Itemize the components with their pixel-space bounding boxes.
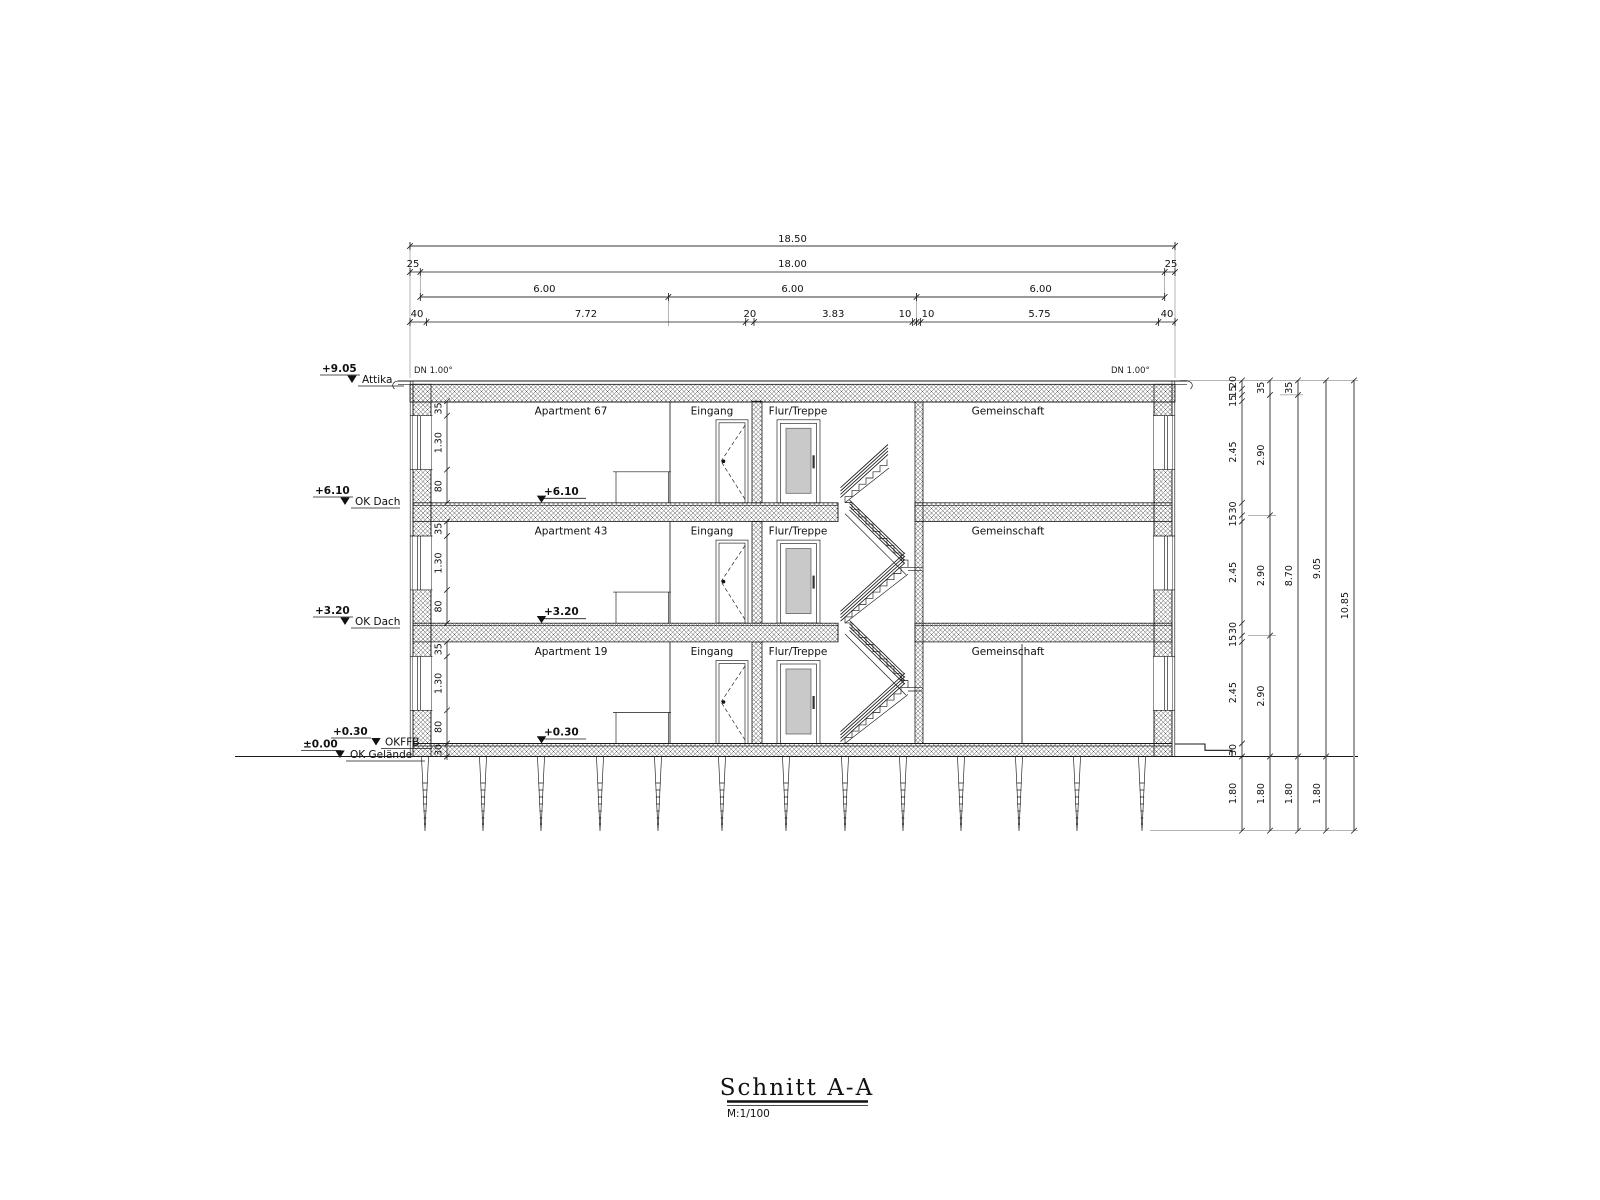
level-marker-ok-dach-upper: +6.10 OK Dach: [313, 485, 400, 508]
floor-level-marker-middle: +3.20: [537, 606, 586, 623]
stair-top: [841, 445, 890, 503]
apartment-label-middle: Apartment 43: [535, 526, 608, 538]
dim-label: 25: [407, 259, 420, 270]
svg-text:+3.20: +3.20: [315, 605, 350, 617]
svg-text:Attika: Attika: [362, 374, 392, 386]
svg-text:+3.20: +3.20: [544, 606, 579, 618]
svg-text:15: 15: [1228, 635, 1239, 647]
svg-text:OK Gelände: OK Gelände: [350, 749, 412, 761]
svg-text:8.70: 8.70: [1284, 565, 1295, 586]
right-dimension-chains: 20 15 15 2.45 30 15 2.45 30 15 2.45 30 1…: [1150, 376, 1358, 834]
dim-label: 6.00: [533, 284, 555, 295]
svg-text:30: 30: [1228, 622, 1239, 634]
svg-text:35: 35: [1284, 382, 1295, 394]
storey-first: [410, 519, 1175, 626]
dim-label: 6.00: [781, 284, 803, 295]
svg-text:15: 15: [1228, 395, 1239, 407]
svg-text:2.90: 2.90: [1256, 565, 1267, 586]
section-drawing-page: Eingang Flur/Treppe Gemeinschaft 35 1.30…: [0, 0, 1600, 1200]
svg-text:2.90: 2.90: [1256, 445, 1267, 466]
svg-text:2.90: 2.90: [1256, 686, 1267, 707]
dim-label: 5.75: [1028, 309, 1050, 320]
dim-label: 10: [922, 309, 935, 320]
ground-slab: [413, 744, 1172, 757]
svg-text:35: 35: [1256, 382, 1267, 394]
foundation-piles: [422, 757, 1146, 831]
apartment-label-ground: Apartment 19: [535, 646, 608, 658]
svg-text:10.85: 10.85: [1340, 592, 1351, 619]
dim-label: 7.72: [575, 309, 597, 320]
storey-ground: [410, 639, 1175, 746]
svg-text:OKFFB: OKFFB: [385, 737, 419, 749]
svg-text:OK Dach: OK Dach: [355, 496, 400, 508]
stair-ground: [841, 621, 923, 744]
storey-second: [410, 398, 1175, 505]
svg-text:1.80: 1.80: [1312, 783, 1323, 804]
svg-text:30: 30: [1228, 501, 1239, 513]
svg-text:+6.10: +6.10: [315, 485, 350, 497]
floor-slab-upper: [413, 503, 1172, 522]
dim-label: 20: [744, 309, 757, 320]
dim-label: 40: [411, 309, 424, 320]
top-dimension-chains: 18.50 25 18.00 25 6.00 6.00 6.00 40 7.72…: [407, 234, 1178, 378]
svg-text:±0.00: ±0.00: [303, 739, 338, 751]
stairwell-wall: [915, 402, 923, 744]
drawing-scale: M:1/100: [727, 1108, 770, 1120]
section-drawing: Eingang Flur/Treppe Gemeinschaft 35 1.30…: [0, 0, 1600, 1200]
entrance-steps: [1175, 744, 1232, 757]
dim-label: 3.83: [822, 309, 844, 320]
dim-label: 25: [1165, 259, 1178, 270]
svg-text:30: 30: [434, 744, 445, 756]
svg-text:+9.05: +9.05: [322, 363, 357, 375]
dim-label: 40: [1161, 309, 1174, 320]
svg-text:1.80: 1.80: [1228, 783, 1239, 804]
roof-slope-left-label: DN 1.00°: [414, 366, 453, 376]
drawing-title: Schnitt A-A: [720, 1075, 874, 1101]
svg-text:+0.30: +0.30: [544, 727, 579, 739]
level-marker-attika: +9.05 Attika: [320, 363, 404, 386]
dim-total: 18.50: [778, 234, 807, 245]
dim-label: 6.00: [1029, 284, 1051, 295]
level-marker-ok-dach-lower: +3.20 OK Dach: [313, 605, 400, 628]
dim-label: 10: [899, 309, 912, 320]
svg-text:15: 15: [1228, 514, 1239, 526]
svg-text:2.45: 2.45: [1228, 682, 1239, 703]
svg-text:+6.10: +6.10: [544, 486, 579, 498]
apartment-label-top: Apartment 67: [535, 405, 608, 417]
floor-slab-lower: [413, 623, 1172, 642]
floor-level-marker-ground: +0.30: [537, 727, 586, 744]
wall-dimension-chain-base: 30: [434, 744, 450, 761]
roof-slab: [393, 381, 1193, 402]
svg-text:2.45: 2.45: [1228, 562, 1239, 583]
svg-text:+0.30: +0.30: [333, 726, 368, 738]
svg-text:OK Dach: OK Dach: [355, 616, 400, 628]
title-block: Schnitt A-A M:1/100: [720, 1075, 874, 1120]
svg-text:2.45: 2.45: [1228, 441, 1239, 462]
svg-text:1.80: 1.80: [1284, 783, 1295, 804]
svg-text:9.05: 9.05: [1312, 558, 1323, 579]
roof-slope-right-label: DN 1.00°: [1111, 366, 1150, 376]
stair-first: [841, 500, 923, 623]
svg-text:1.80: 1.80: [1256, 783, 1267, 804]
floor-level-marker-top: +6.10: [537, 486, 586, 503]
svg-text:30: 30: [1228, 744, 1239, 756]
dim-label: 18.00: [778, 259, 807, 270]
